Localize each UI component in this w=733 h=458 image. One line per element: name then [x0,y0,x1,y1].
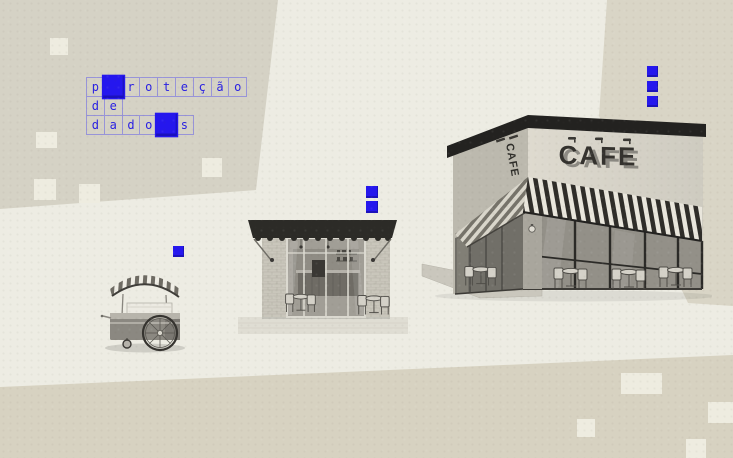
cafe-front-sign: CAFE CAFE [559,140,642,175]
cart-handle [103,316,111,318]
pixel-square-cart [173,246,184,257]
crossword-cell: o [139,77,158,97]
crossword-cell: ç [193,77,212,97]
cart-awning [110,275,181,297]
crossword-cell: o [228,77,247,97]
cart-post-left [122,294,123,316]
cart-illustration [95,260,195,355]
decor-square [34,179,56,200]
decor-square [708,402,733,423]
crossword-cell: d [122,115,141,135]
decor-square [36,132,57,148]
small-cafe-illustration [238,215,408,335]
decor-square [686,439,706,458]
pendant-light [299,245,302,248]
crossword-cell: a [104,115,123,135]
awning-lamp-right [371,258,375,262]
awning-lamp-left [270,258,274,262]
crossword-cell-filled [102,75,125,99]
cafe-sign-text: CAFE [559,140,638,172]
crossword-cell: ã [211,77,230,97]
crossword-protecao-de-dados: p r o t e ç ã o d e d a d o s [86,77,247,135]
pixel-square-large-cafe-1 [647,66,658,77]
small-cafe-pillar-left [262,238,287,317]
crossword-row-1: p r o t e ç ã o [86,77,247,97]
large-cafe-illustration: CAFE CAFE CAFE [420,108,712,304]
small-cafe-pavement [238,317,408,334]
espresso-machine [312,260,325,277]
small-cafe-storefront [286,238,365,317]
corner-pillar [523,212,542,289]
cart-big-wheel [143,316,177,350]
crossword-cell: d [86,115,105,135]
decor-square [577,419,595,437]
decor-square [202,158,222,177]
decor-square [79,184,100,203]
crossword-cell: e [175,77,194,97]
crossword-cell: t [157,77,176,97]
background-panel-bottom [0,355,733,458]
cart-display-case [127,303,172,314]
pixel-square-small-cafe-1 [366,186,378,198]
cart-handle-knob [101,315,104,318]
pixel-square-small-cafe-2 [366,201,378,213]
decor-square [50,38,68,55]
crossword-cell-filled [155,113,178,137]
pixel-square-large-cafe-2 [647,81,658,92]
decor-square [621,373,662,394]
illustration-canvas: p r o t e ç ã o d e d a d o s [0,0,733,458]
pillar-lamp [529,226,535,232]
pendant-light [326,245,329,248]
pixel-square-large-cafe-3 [647,96,658,107]
crossword-row-3: d a d o s [86,115,247,135]
